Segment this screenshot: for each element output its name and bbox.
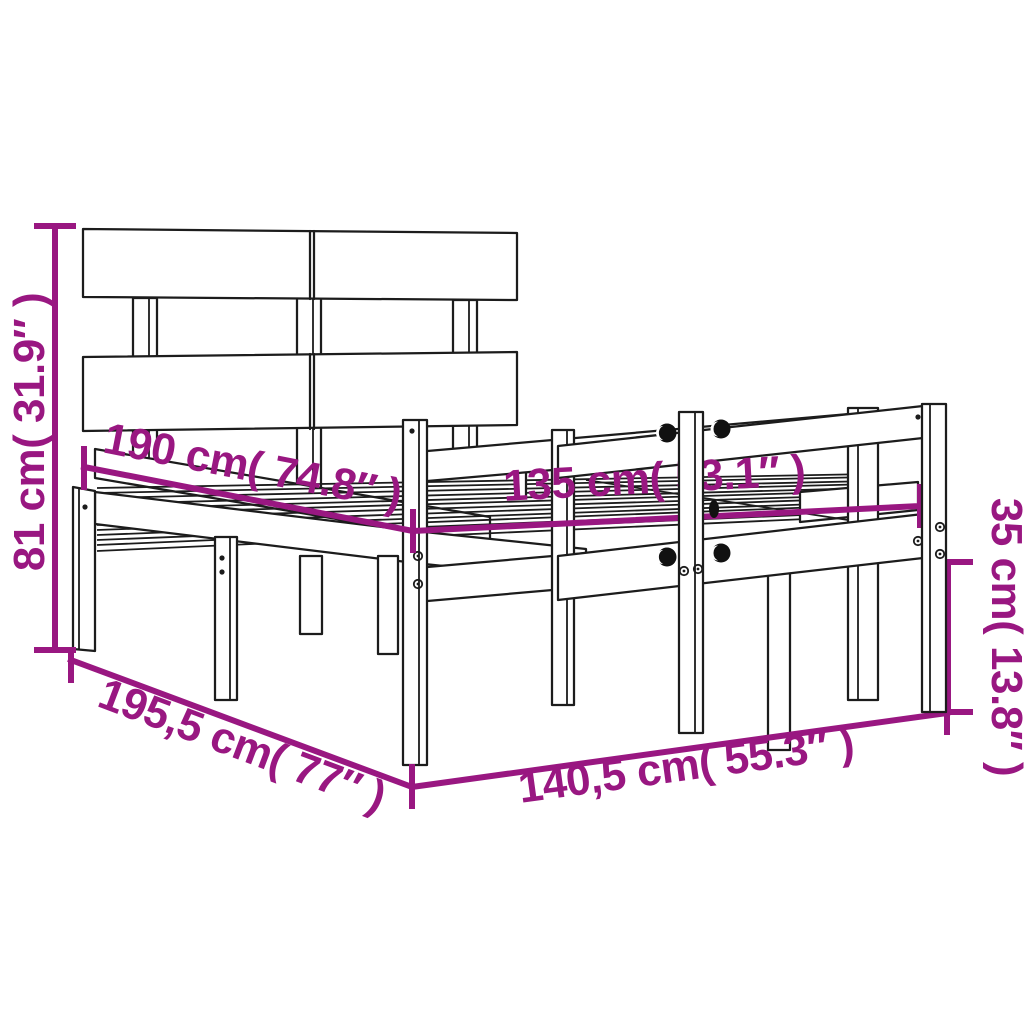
product-dimension-diagram: 81 cm( 31.9″ ) 190 cm( 74.8″ ) 135 cm( 5… (0, 0, 1024, 1024)
leg (768, 562, 790, 750)
legs-back (215, 537, 398, 700)
screw-icon (409, 428, 414, 433)
dimension-headboard-height: 81 cm( 31.9″ ) (5, 226, 73, 650)
dimension-label-headboard-height: 81 cm( 31.9″ ) (5, 293, 54, 571)
screw-icon (915, 414, 920, 419)
dimension-outer-length: 195,5 cm( 77″ ) (71, 650, 412, 822)
leg (378, 556, 398, 654)
bed-frame-line-drawing: 81 cm( 31.9″ ) 190 cm( 74.8″ ) 135 cm( 5… (0, 0, 1024, 1024)
corner-post-head-left (73, 487, 95, 651)
dimension-label-rail-height: 35 cm( 13.8″ ) (982, 498, 1024, 776)
screw-icon (219, 569, 224, 574)
screw-icon (82, 504, 87, 509)
headboard-board-top (83, 229, 517, 300)
leg (215, 537, 237, 700)
rail-post-far (403, 420, 427, 765)
headboard-board-middle (83, 352, 517, 431)
dimension-label-outer-length: 195,5 cm( 77″ ) (92, 669, 392, 822)
bolt-icon (709, 500, 719, 518)
leg (300, 556, 322, 634)
screw-icon (219, 555, 224, 560)
